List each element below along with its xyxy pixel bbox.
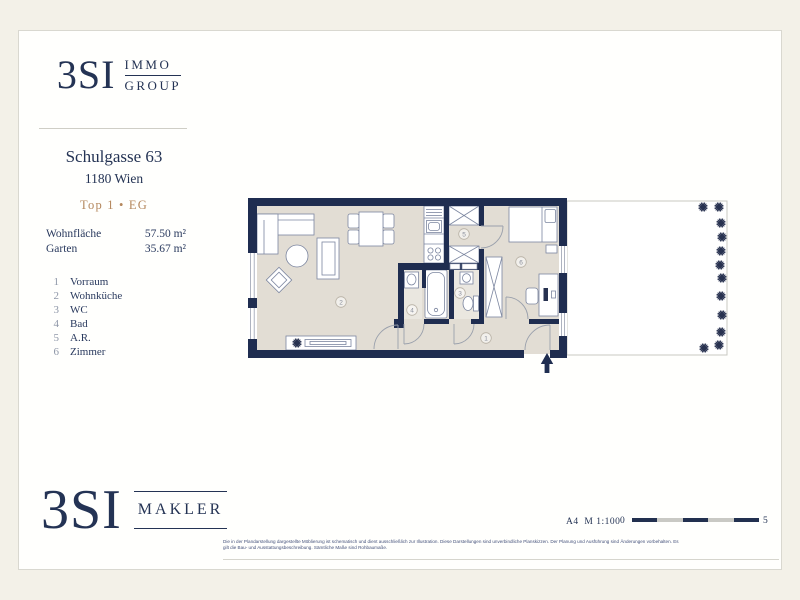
- logo-makler-text: MAKLER: [134, 491, 228, 529]
- sideboard: [286, 336, 356, 350]
- area-row-garten: Garten 35.67 m²: [46, 242, 186, 257]
- disclaimer-line2: gilt die Bau- und Ausstattungsbeschreibu…: [223, 545, 779, 551]
- svg-text:4: 4: [410, 307, 414, 314]
- scalebar-segment: [683, 518, 708, 522]
- area-label: Garten: [46, 242, 77, 257]
- company-logo-top: 3SI IMMO GROUP: [39, 55, 199, 95]
- bathtub: [425, 270, 447, 318]
- coffee-table: [286, 245, 308, 267]
- legend-number: 1: [46, 275, 59, 289]
- room-badge-6: 6: [516, 257, 527, 268]
- room-badge-3: 3: [455, 288, 466, 299]
- room-badge-5: 5: [459, 229, 470, 240]
- sheet-format-and-scale: A4 M 1:100: [566, 517, 620, 527]
- legend-item-wohnkueche: 2Wohnküche: [46, 289, 186, 303]
- legend-label: Bad: [70, 317, 88, 331]
- scalebar-end-label: 5: [763, 516, 768, 526]
- window-right-1: [559, 246, 567, 273]
- scalebar-segment: [632, 518, 657, 522]
- legend-item-wc: 3WC: [46, 303, 186, 317]
- footer-divider: [223, 559, 779, 560]
- legend-number: 6: [46, 345, 59, 359]
- kitchen-counter: [424, 206, 444, 263]
- scalebar-start-label: 0: [620, 516, 625, 526]
- legend-label: A.R.: [70, 331, 91, 345]
- legend-label: Zimmer: [70, 345, 105, 359]
- garden-area: [567, 201, 727, 355]
- legend-item-zimmer: 6Zimmer: [46, 345, 186, 359]
- svg-text:6: 6: [519, 259, 523, 266]
- sheet-scale: M 1:100: [584, 517, 620, 527]
- room-badge-4: 4: [407, 305, 418, 316]
- logo-group-line1: IMMO: [125, 57, 182, 76]
- nightstand: [546, 245, 557, 253]
- legend-label: WC: [70, 303, 88, 317]
- plan-sheet: 3SI IMMO GROUP Schulgasse 63 1180 Wien T…: [18, 30, 782, 570]
- svg-text:2: 2: [339, 299, 343, 306]
- logo-brand-text: 3SI: [41, 482, 122, 538]
- logo-brand-text: 3SI: [57, 55, 116, 95]
- loveseat: [317, 238, 339, 279]
- scalebar-segment: [734, 518, 759, 522]
- page-background: 3SI IMMO GROUP Schulgasse 63 1180 Wien T…: [0, 0, 800, 600]
- project-city: 1180 Wien: [19, 171, 209, 187]
- svg-text:3: 3: [458, 290, 462, 297]
- laptop-icon: [544, 288, 549, 301]
- company-logo-bottom: 3SI MAKLER: [41, 482, 227, 538]
- window-left-1: [248, 253, 257, 298]
- page-title: Schulgasse 63: [19, 147, 209, 167]
- unit-label: Top 1 • EG: [19, 198, 209, 213]
- scalebar-segment: [708, 518, 733, 522]
- area-value: 35.67 m²: [145, 242, 186, 257]
- scalebar-segment: [657, 518, 682, 522]
- floor-plan: 1 2 3 4 5 6: [241, 193, 741, 383]
- legend-item-vorraum: 1Vorraum: [46, 275, 186, 289]
- wardrobe: [486, 257, 502, 317]
- svg-text:1: 1: [484, 335, 488, 342]
- svg-text:5: 5: [462, 231, 466, 238]
- area-table: Wohnfläche 57.50 m² Garten 35.67 m²: [46, 227, 186, 257]
- plant-icon: [293, 339, 301, 347]
- legend-number: 4: [46, 317, 59, 331]
- desk-item: [552, 291, 556, 298]
- desk-chair: [526, 288, 538, 304]
- area-value: 57.50 m²: [145, 227, 186, 242]
- legend-label: Wohnküche: [70, 289, 122, 303]
- room-badge-2: 2: [336, 297, 347, 308]
- legend-number: 2: [46, 289, 59, 303]
- legend-item-ar: 5A.R.: [46, 331, 186, 345]
- logo-group-line2: GROUP: [125, 78, 182, 94]
- area-label: Wohnfläche: [46, 227, 101, 242]
- header-divider: [39, 128, 187, 129]
- toilet: [463, 296, 479, 311]
- legend-label: Vorraum: [70, 275, 108, 289]
- pillow: [545, 210, 556, 223]
- window-right-2: [559, 313, 567, 336]
- disclaimer-text: Die in der Plandarstellung dargestellte …: [223, 539, 779, 550]
- room-badge-1: 1: [481, 333, 492, 344]
- legend-number: 5: [46, 331, 59, 345]
- sheet-format: A4: [566, 517, 579, 527]
- wall-niche-boxes: [450, 264, 477, 269]
- room-legend: 1Vorraum 2Wohnküche 3WC 4Bad 5A.R. 6Zimm…: [46, 275, 186, 359]
- area-row-wohnflaeche: Wohnfläche 57.50 m²: [46, 227, 186, 242]
- logo-group-text: IMMO GROUP: [125, 57, 182, 94]
- legend-number: 3: [46, 303, 59, 317]
- legend-item-bad: 4Bad: [46, 317, 186, 331]
- window-left-2: [248, 308, 257, 339]
- scalebar: [632, 518, 759, 522]
